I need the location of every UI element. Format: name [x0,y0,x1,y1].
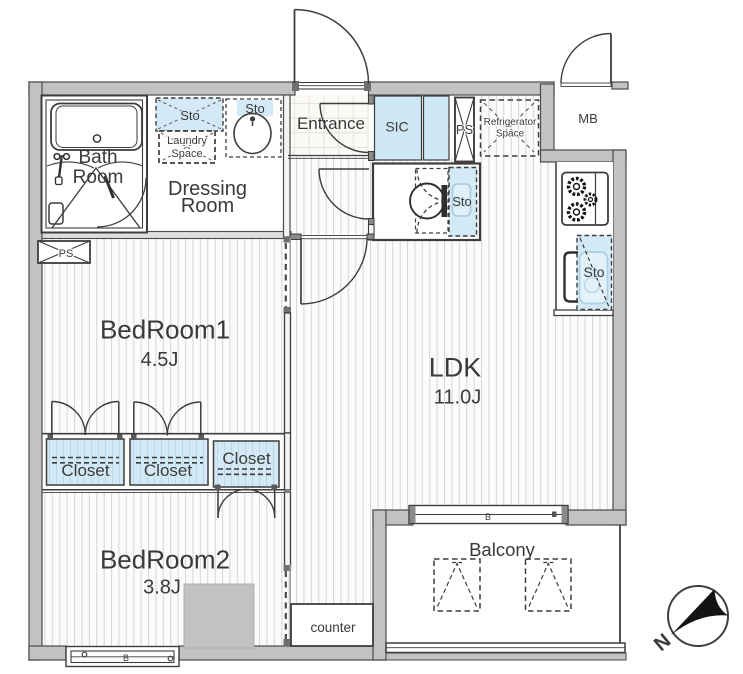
svg-text:3.8J: 3.8J [143,577,181,599]
svg-text:LDK: LDK [429,353,482,383]
svg-text:BedRoom1: BedRoom1 [100,315,230,345]
svg-text:Sto: Sto [180,108,200,123]
svg-text:Laundry: Laundry [167,135,207,147]
svg-text:SIC: SIC [385,119,408,135]
svg-text:Room: Room [181,195,234,217]
svg-text:PS: PS [59,248,74,260]
svg-text:Bath: Bath [78,147,117,168]
svg-text:Entrance: Entrance [297,114,365,133]
svg-text:Sto: Sto [245,101,265,116]
svg-text:PS: PS [456,122,474,137]
svg-text:Closet: Closet [61,461,109,480]
svg-text:Space: Space [496,129,525,140]
svg-text:counter: counter [310,620,356,635]
svg-text:Room: Room [73,167,124,188]
svg-text:Sto: Sto [583,264,604,280]
svg-text:Closet: Closet [222,449,270,468]
svg-text:Refrigerator: Refrigerator [484,117,537,128]
svg-text:4.5J: 4.5J [141,349,179,371]
svg-text:Balcony: Balcony [469,539,536,560]
svg-text:Space: Space [171,148,202,160]
svg-text:B: B [485,512,491,522]
svg-text:Sto: Sto [452,194,472,209]
svg-text:11.0J: 11.0J [434,387,481,409]
svg-text:Closet: Closet [144,461,192,480]
svg-text:BedRoom2: BedRoom2 [100,545,230,575]
svg-text:B: B [123,653,129,663]
svg-text:MB: MB [578,111,598,126]
